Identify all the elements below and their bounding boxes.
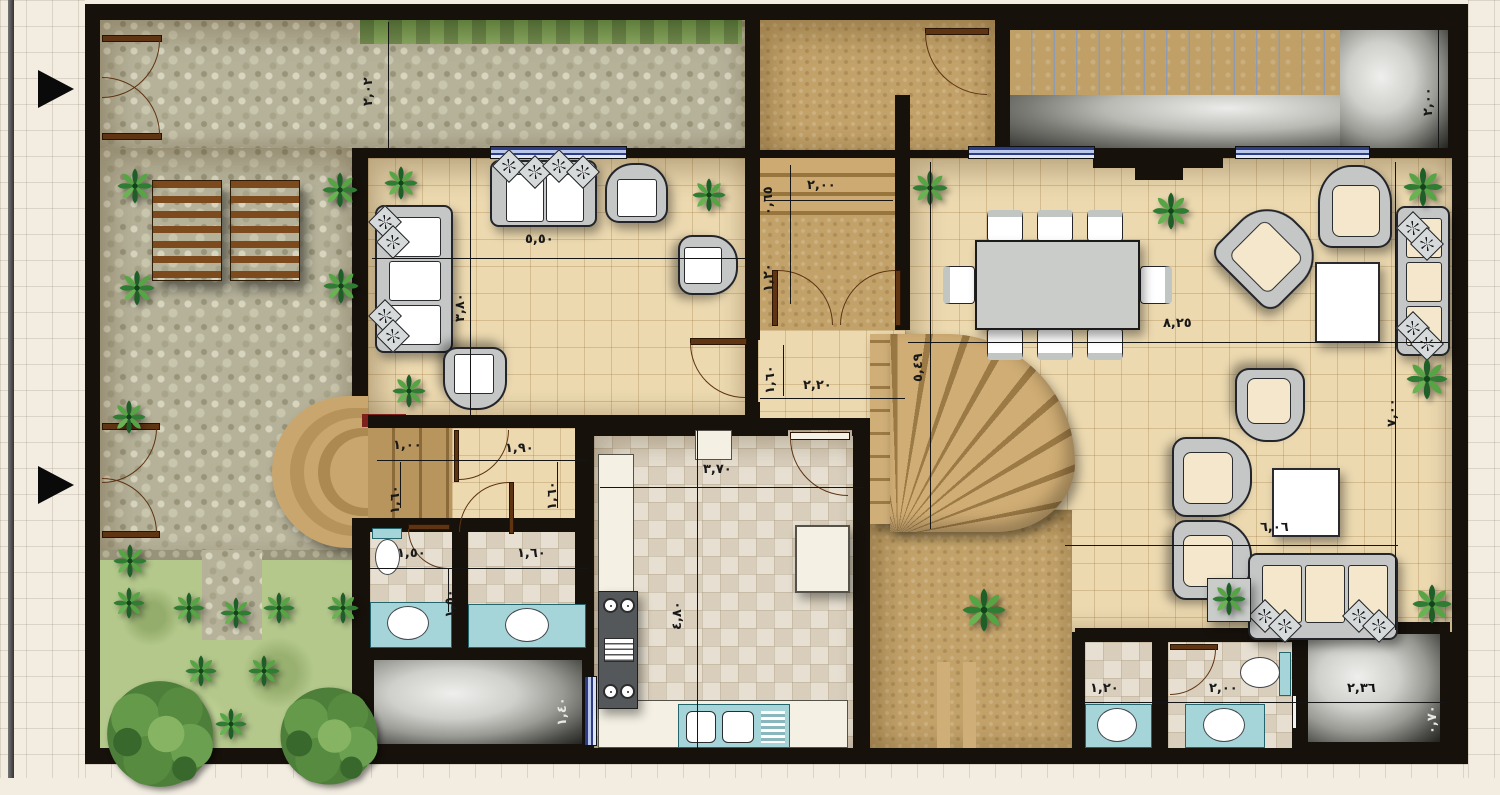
- hedge: [360, 20, 742, 44]
- dimension-line: [600, 487, 863, 488]
- stair-baluster-slot: [963, 662, 976, 748]
- dimension-line: [765, 200, 893, 201]
- palm-plant-icon: [1403, 167, 1443, 207]
- entry-arrow-icon: [38, 70, 74, 108]
- entrance-landing: [760, 215, 895, 272]
- wall: [745, 158, 760, 340]
- sink-icon: [1097, 708, 1137, 742]
- refrigerator: [795, 525, 850, 593]
- palm-plant-icon: [1406, 358, 1448, 400]
- wall: [745, 20, 760, 158]
- palm-plant-icon: [173, 592, 205, 624]
- palm-plant-icon: [322, 172, 358, 208]
- pergola-icon: [152, 180, 222, 281]
- dimension-line: [760, 398, 905, 399]
- sink-icon: [686, 711, 716, 743]
- dim-bath1-door: ١,٥٠: [443, 589, 458, 618]
- dim-entry-width: ٢,٢٠: [803, 378, 832, 393]
- dim-steps-width: ٢,٠٠: [807, 178, 836, 193]
- armchair: [1235, 368, 1305, 442]
- dim-bath4-width: ٢,٠٠: [1209, 681, 1238, 696]
- dim-lightwell-left: ١,٤٠: [555, 697, 570, 726]
- dimension-line: [370, 568, 588, 569]
- wall: [1072, 632, 1085, 748]
- light-well-left: [374, 660, 582, 744]
- dimension-line: [1438, 30, 1439, 148]
- dim-dining-width: ٨,٢٥: [1163, 316, 1192, 331]
- dining-chair: [987, 328, 1023, 360]
- palm-plant-icon: [117, 168, 153, 204]
- dim-lightwell-right-depth: ٠,٧٠: [1425, 705, 1440, 734]
- drainboard: [761, 711, 785, 743]
- dimension-line: [930, 162, 931, 529]
- stove-icon: [598, 591, 638, 709]
- wall: [995, 20, 1010, 99]
- kitchen-sink-unit: [678, 704, 790, 748]
- palm-plant-icon: [220, 597, 252, 629]
- palm-plant-icon: [263, 592, 295, 624]
- dimension-line: [1065, 545, 1398, 546]
- street-curb-line: [8, 0, 14, 778]
- dining-chair: [943, 266, 975, 304]
- kitchen-counter: [695, 430, 732, 460]
- window-kitchen-side: [584, 676, 597, 746]
- palm-plant-icon: [1412, 584, 1452, 624]
- entry-arrow-icon: [38, 466, 74, 504]
- palm-plant-icon: [112, 400, 146, 434]
- dining-chair: [1087, 328, 1123, 360]
- toilet-icon: [1240, 657, 1280, 688]
- dim-bath1-width: ١,٥٠: [397, 546, 426, 561]
- dim-entry-depth: ١,٦٠: [763, 365, 778, 394]
- dim-family-width: ٦,٠٦: [1260, 520, 1289, 535]
- dining-chair: [1140, 266, 1172, 304]
- swing-door-leaf: [509, 482, 514, 534]
- wall: [575, 418, 788, 436]
- dim-terrace-depth: ٢,٠٠: [1421, 87, 1436, 116]
- entry-double-door-leaf: [895, 270, 901, 326]
- tree-icon: [273, 680, 385, 792]
- armchair: [1172, 437, 1252, 517]
- dimension-line: [372, 258, 745, 259]
- dining-chair: [1087, 210, 1123, 242]
- floor-plan: ٢,٠٢ ٢,٠٠ ٥,٥٠ ٣,٨٠ ٢,٠٠ ٠,٦٥ ١,٢٠ ١,٦٠ …: [85, 4, 1468, 764]
- dim-living-width: ٥,٥٠: [525, 232, 554, 247]
- wall: [1152, 642, 1168, 748]
- pergola-icon: [230, 180, 300, 281]
- wall-pier: [1135, 158, 1183, 180]
- dimension-line: [697, 430, 698, 748]
- dim-bath2-width: ١,٦٠: [517, 546, 546, 561]
- sink-icon: [387, 606, 429, 640]
- dimension-line: [1080, 702, 1446, 703]
- gravel-strip: [1010, 95, 1345, 148]
- dim-corridor-width: ١,٩٠: [505, 441, 534, 456]
- dimension-line: [790, 165, 791, 304]
- sink-icon: [505, 608, 549, 642]
- dining-chair: [1037, 210, 1073, 242]
- window-family: [1235, 146, 1370, 159]
- window-dining: [968, 146, 1095, 159]
- armchair: [1318, 165, 1392, 248]
- dimension-line: [908, 342, 1448, 343]
- dim-corridor-left: ١,٦٠: [388, 485, 403, 514]
- palm-plant-icon: [962, 588, 1006, 632]
- dim-bath3-width: ١,٢٠: [1090, 681, 1119, 696]
- toilet-tank: [1279, 652, 1291, 696]
- sink-icon: [1203, 708, 1245, 742]
- wall: [853, 418, 870, 748]
- dim-family-depth: ٧,٠٠: [1385, 398, 1400, 427]
- palm-plant-icon: [327, 592, 359, 624]
- dim-garden-passage: ٢,٠٢: [361, 77, 376, 106]
- dining-table-icon: [975, 240, 1140, 330]
- side-table: [1315, 262, 1380, 343]
- palm-plant-icon: [113, 587, 145, 619]
- palm-plant-icon: [1212, 582, 1246, 616]
- dim-kitchen-depth: ٤,٨٠: [670, 601, 685, 630]
- dining-chair: [987, 210, 1023, 242]
- dim-corridor-right: ١,٦٠: [545, 481, 560, 510]
- stair-baluster-slot: [937, 662, 950, 748]
- dimension-line: [388, 22, 389, 148]
- palm-plant-icon: [1152, 192, 1190, 230]
- dim-landing-width: ١,٠٠: [393, 438, 422, 453]
- right-sidewalk: [1468, 0, 1500, 778]
- armchair: [678, 235, 738, 295]
- palm-plant-icon: [392, 374, 426, 408]
- dim-steps-lower: ١,٢٠: [761, 263, 776, 292]
- dimension-line: [1395, 162, 1396, 630]
- dim-steps-upper: ٠,٦٥: [761, 186, 776, 215]
- sink-icon: [722, 711, 754, 743]
- wall: [745, 402, 760, 418]
- dim-lightwell-right-width: ٢,٣٦: [1347, 681, 1376, 696]
- dimension-line: [783, 345, 784, 396]
- palm-plant-icon: [119, 270, 155, 306]
- dim-dining-depth: ٥,٤٩: [911, 353, 926, 382]
- dim-kitchen-width: ٣,٧٠: [703, 462, 732, 477]
- palm-plant-icon: [692, 178, 726, 212]
- toilet-tank: [372, 528, 402, 539]
- palm-plant-icon: [113, 544, 147, 578]
- armchair: [605, 163, 668, 223]
- palm-plant-icon: [323, 268, 359, 304]
- armchair: [443, 347, 507, 410]
- dim-living-depth: ٣,٨٠: [453, 293, 468, 322]
- floor-plan-page: { "plan": { "kind": "villa-ground-floor-…: [0, 0, 1500, 778]
- dimension-line: [470, 158, 471, 415]
- tree-icon: [99, 673, 221, 795]
- palm-plant-icon: [384, 166, 418, 200]
- dining-chair: [1037, 328, 1073, 360]
- wood-deck: [1010, 30, 1340, 95]
